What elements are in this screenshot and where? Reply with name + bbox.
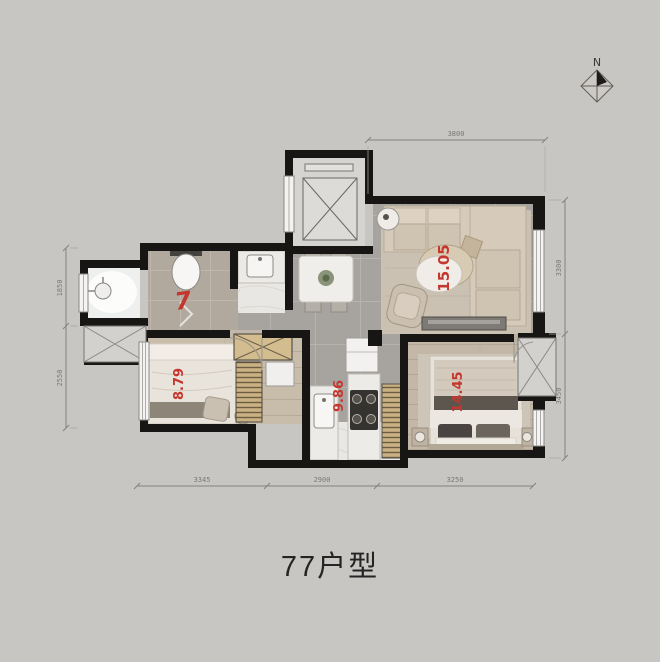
dim-bottom-middle: 2900 [314,476,331,484]
kitchen-faucet [322,398,326,402]
side-table-decor [383,214,389,220]
shower-head [95,283,111,299]
burner [367,395,376,404]
master-bottom-wall [400,450,545,458]
lamp-left [415,432,425,442]
elevator-core [293,158,365,246]
floorplan-page: 15.05 8.79 9.86 14.45 7 3800 3300 3450 1… [0,0,660,662]
shower-glow [87,271,137,313]
kitchen-bottom-wall [248,460,408,468]
kitchen-area-label: 9.86 [332,380,347,412]
dim-top: 3800 [448,130,465,138]
burner [353,395,362,404]
master-dark-band [434,396,518,410]
tv-console-detail [428,320,500,324]
chaise-cushion [476,250,520,288]
bedroom2-window-left [139,342,149,420]
bedroom2-cabinet [266,362,294,386]
toilet-room-floor2 [230,289,238,330]
chaise-cushion [476,290,520,320]
elevator-door [305,164,353,171]
living-area-label: 15.05 [435,244,453,291]
lobby-window-left [284,176,294,232]
master-top-wall [408,334,514,342]
dim-left-lower: 2550 [56,370,64,387]
living-top-wall [365,196,545,204]
bed2-pillows [148,344,236,360]
living-room-furniture [377,206,531,334]
north-label: N [593,56,601,69]
lamp-right [523,433,532,442]
bedroom2-stool [202,396,229,422]
living-window-right [533,230,544,312]
bedroom2-area-label: 8.79 [172,368,187,400]
sofa-back-cushion [428,208,460,224]
shower-window-left [79,274,88,312]
master-blanket [434,360,518,396]
north-compass: N [581,56,613,102]
toilet [172,254,200,290]
dim-bottom-left: 3345 [194,476,211,484]
vanity-faucet [258,257,262,261]
dining-set [299,246,353,312]
elevator-wall-top [285,150,373,158]
master-area-label: 14.45 [451,371,466,412]
plan-title: 77户型 [281,550,379,583]
wardrobe2-hatched [236,362,262,422]
master-furniture [412,354,533,450]
dim-left-upper: 1850 [56,280,64,297]
burner [353,415,362,424]
burner [367,415,376,424]
dim-right-upper: 3300 [555,260,563,277]
sofa-seat-cushion [394,224,426,250]
table-plant-center [323,275,330,282]
master-window-right [533,410,544,446]
dim-bottom-right: 3250 [447,476,464,484]
dim-right-lower: 3450 [555,388,563,405]
master-headboard [428,444,524,450]
floorplan-image: 15.05 8.79 9.86 14.45 7 3800 3300 3450 1… [0,0,660,662]
